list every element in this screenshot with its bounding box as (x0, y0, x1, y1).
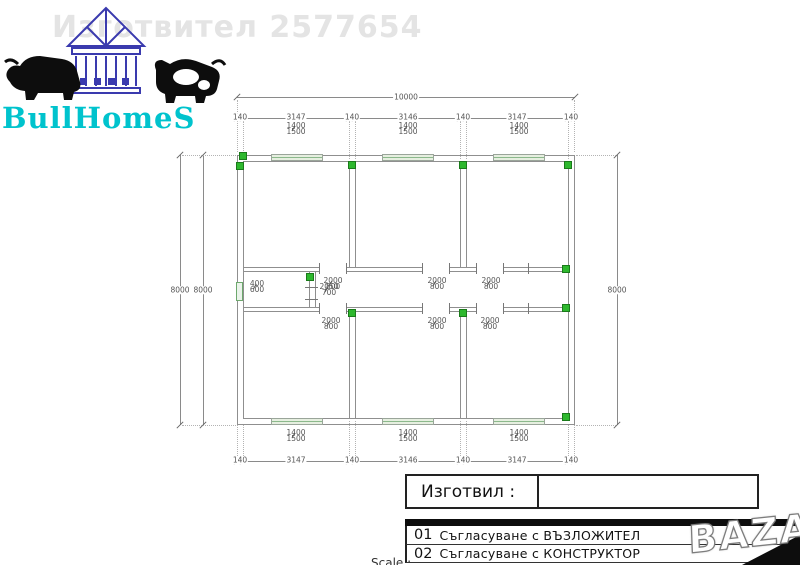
door-jamb-tick (528, 303, 529, 314)
partition-wall (349, 311, 356, 419)
extension-line (243, 425, 244, 458)
extension-line (568, 425, 569, 458)
extension-line (243, 121, 244, 153)
dim-segment: 140 (344, 456, 360, 464)
door-size-label: 2000800 (427, 316, 446, 332)
window (382, 418, 434, 425)
extension-line (349, 421, 350, 458)
window-size-label: 14001500 (286, 428, 305, 444)
size-height: 1500 (286, 127, 305, 136)
column-marker (562, 304, 570, 312)
door-opening (476, 306, 503, 313)
extension-line (576, 155, 616, 156)
extension-line (460, 121, 461, 159)
door-opening (319, 306, 346, 313)
scale-label: Scale : (371, 556, 411, 565)
window (493, 418, 545, 425)
extension-line (355, 421, 356, 458)
author-label-cell: Изготвил : (407, 476, 539, 507)
revision-label: Съгласуване с КОНСТРУКТОР (439, 546, 640, 561)
dim-segment: 3147 (285, 113, 306, 121)
dimension-tick (571, 93, 578, 100)
dim-segment: 3147 (506, 113, 527, 121)
door-opening (476, 266, 503, 273)
partition-wall (460, 311, 467, 419)
dim-segment: 3147 (285, 456, 306, 464)
size-height: 600 (250, 285, 264, 294)
window (382, 154, 434, 161)
size-height: 1500 (509, 434, 528, 443)
window (271, 418, 323, 425)
column-marker (236, 162, 244, 170)
dim-height: 8000 (192, 286, 213, 294)
dim-height: 8000 (606, 286, 627, 294)
revision-number: 01 (414, 527, 432, 543)
door-jamb-tick (422, 263, 423, 274)
door-size-label: 2050700 (319, 282, 338, 298)
size-height: 800 (430, 322, 444, 331)
size-height: 800 (324, 322, 338, 331)
door-size-label: 2000800 (480, 316, 499, 332)
door-jamb-tick (476, 263, 477, 274)
window (236, 282, 243, 301)
extension-line (460, 421, 461, 458)
extension-line (237, 425, 238, 458)
size-height: 800 (430, 282, 444, 291)
door-jamb-tick (449, 303, 450, 314)
column-marker (306, 273, 314, 281)
author-value-cell[interactable] (539, 476, 757, 507)
author-box: Изготвил : (405, 474, 759, 509)
door-opening (319, 266, 346, 273)
door-jamb-tick (319, 303, 320, 314)
dim-segment: 3147 (506, 456, 527, 464)
door-jamb-tick (346, 263, 347, 274)
door-jamb-tick (319, 263, 320, 274)
door-jamb-tick (422, 303, 423, 314)
outer-wall-inner-line (243, 161, 569, 419)
dim-segment: 140 (232, 113, 248, 121)
door-size-label: 2000800 (427, 276, 446, 292)
extension-line (568, 121, 569, 159)
door-size-label: 2000800 (321, 316, 340, 332)
revision-number: 02 (414, 546, 432, 562)
size-height: 1500 (509, 127, 528, 136)
door-opening (422, 306, 449, 313)
extension-line (574, 425, 575, 458)
partition-wall (349, 161, 356, 268)
size-height: 800 (483, 322, 497, 331)
corridor-wall (243, 307, 569, 312)
dim-segment: 140 (455, 456, 471, 464)
drawing-sheet: Изготвител 2577654 (0, 0, 800, 565)
extension-line (574, 100, 575, 152)
window-size-label: 14001500 (509, 121, 528, 137)
column-marker (348, 309, 356, 317)
extension-line (355, 121, 356, 159)
partition-wall (460, 161, 467, 268)
dim-overall-width: 10000 (393, 93, 419, 101)
door-opening (422, 266, 449, 273)
door-jamb-tick (346, 303, 347, 314)
column-marker (562, 265, 570, 273)
extension-line (576, 425, 616, 426)
dim-segment: 140 (232, 456, 248, 464)
dim-segment: 3146 (397, 113, 418, 121)
window-size-label: 14001500 (398, 428, 417, 444)
door-size-label: 2000800 (481, 276, 500, 292)
dim-segment: 140 (563, 456, 579, 464)
dim-segment: 3146 (397, 456, 418, 464)
door-jamb-tick (305, 287, 318, 288)
window-size-label: 14001500 (509, 428, 528, 444)
size-height: 1500 (286, 434, 305, 443)
column-marker (239, 152, 247, 160)
dim-segment: 140 (455, 113, 471, 121)
door-jamb-tick (305, 299, 318, 300)
door-jamb-tick (503, 263, 504, 274)
size-height: 800 (484, 282, 498, 291)
window (493, 154, 545, 161)
revision-label: Съгласуване с ВЪЗЛОЖИТЕЛ (439, 528, 640, 543)
column-marker (562, 413, 570, 421)
size-height: 1500 (398, 127, 417, 136)
window (271, 154, 323, 161)
column-marker (348, 161, 356, 169)
window-size-label: 14001500 (286, 121, 305, 137)
dim-segment: 140 (563, 113, 579, 121)
column-marker (564, 161, 572, 169)
size-height: 700 (322, 288, 336, 297)
window-size-label: 14001500 (398, 121, 417, 137)
extension-line (466, 421, 467, 458)
extension-line (182, 155, 236, 156)
dim-segment: 140 (344, 113, 360, 121)
door-jamb-tick (503, 303, 504, 314)
column-marker (459, 161, 467, 169)
extension-line (466, 121, 467, 159)
author-label: Изготвил : (421, 482, 515, 502)
corridor-wall (243, 267, 569, 272)
door-jamb-tick (449, 263, 450, 274)
door-jamb-tick (528, 263, 529, 274)
column-marker (459, 309, 467, 317)
extension-line (349, 121, 350, 159)
extension-line (182, 425, 236, 426)
size-height: 1500 (398, 434, 417, 443)
door-jamb-tick (476, 303, 477, 314)
extension-line (237, 100, 238, 152)
left-window-size-label: 400600 (250, 279, 264, 295)
dim-height: 8000 (169, 286, 190, 294)
